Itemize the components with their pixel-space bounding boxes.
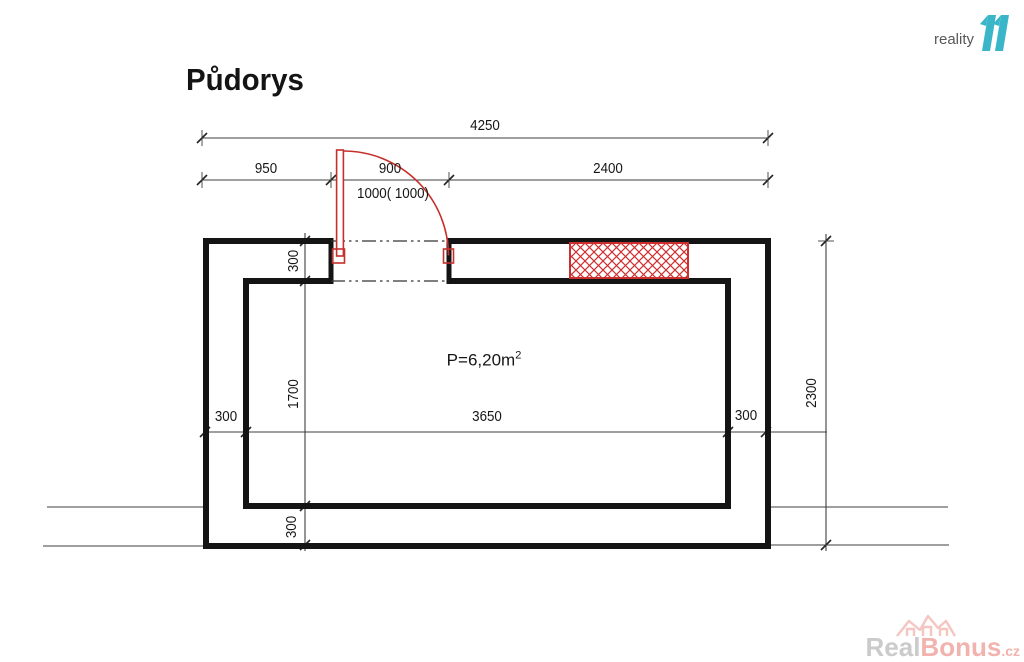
connection-lines <box>43 507 949 546</box>
dim-door-spec: 1000( 1000) <box>357 186 429 202</box>
inner-wall <box>246 281 728 506</box>
page-title: Půdorys <box>186 62 304 98</box>
dimension-ticks <box>197 130 834 550</box>
door-leaf <box>337 150 344 256</box>
watermark: RealBonus.cz <box>866 610 1021 660</box>
dim-room-width: 3650 <box>472 409 502 425</box>
hatched-block <box>570 243 688 278</box>
reality11-logo: reality <box>934 12 1012 54</box>
watermark-text: RealBonus.cz <box>866 634 1021 660</box>
floorplan-drawing <box>0 0 1024 662</box>
door-opening-lines <box>331 241 449 281</box>
dim-wall-right: 300 <box>735 408 757 424</box>
dim-total-right: 2300 <box>804 378 820 408</box>
floorplan-page: Půdorys 4250 950 900 2400 1000( 1000) 30… <box>0 0 1024 662</box>
dim-total-top: 4250 <box>470 118 500 134</box>
watermark-real: Real <box>866 632 921 662</box>
dimension-lines <box>202 138 827 551</box>
room-area-label: P=6,20m2 <box>447 350 522 371</box>
dim-seg-door: 900 <box>379 161 401 177</box>
dim-wall-top: 300 <box>286 250 302 272</box>
room-area-value: P=6,20m <box>447 350 516 369</box>
logo-text: reality <box>934 31 974 48</box>
watermark-bonus: Bonus <box>920 632 1001 662</box>
watermark-cz: .cz <box>1001 643 1020 659</box>
dim-seg-left: 950 <box>255 161 277 177</box>
dim-room-height: 1700 <box>286 379 302 409</box>
dim-wall-bottom: 300 <box>284 516 300 538</box>
dim-wall-left: 300 <box>215 409 237 425</box>
dim-seg-right: 2400 <box>593 161 623 177</box>
logo-11-icon <box>976 12 1012 54</box>
room-area-exponent: 2 <box>515 350 521 362</box>
